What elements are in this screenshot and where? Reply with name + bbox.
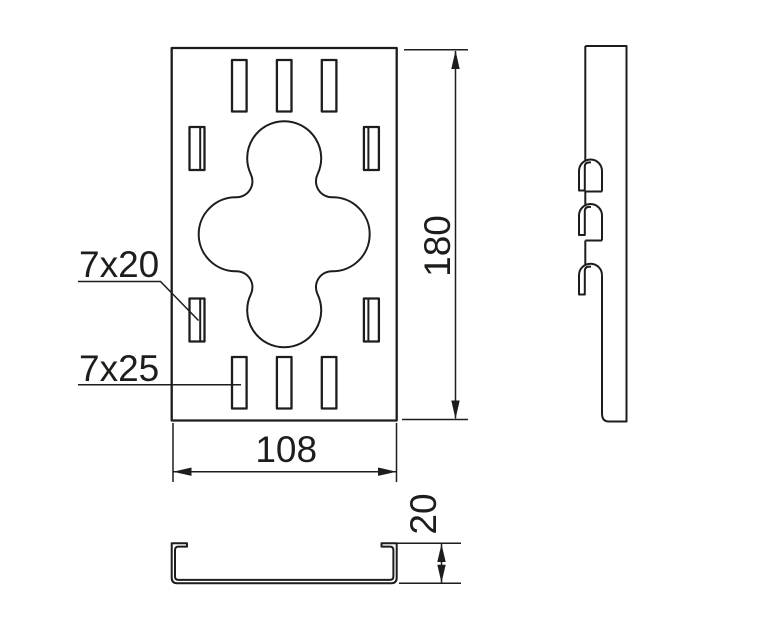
dimension-width: 108 xyxy=(173,423,397,482)
slot-7x25 xyxy=(322,60,337,112)
slot-7x25 xyxy=(277,60,292,112)
dimension-height: 180 xyxy=(402,50,468,420)
slot-7x25 xyxy=(322,357,337,409)
arrowhead-up xyxy=(437,544,445,562)
arrowhead-left xyxy=(173,468,192,476)
drawing-canvas: 180 108 20 7x20 7x25 xyxy=(0,0,762,639)
plate-outline xyxy=(172,48,397,421)
side-view xyxy=(579,46,627,422)
arrowhead-down xyxy=(437,565,445,583)
slot-7x25 xyxy=(232,60,247,112)
side-profile-hooks xyxy=(579,46,602,295)
front-view xyxy=(172,48,397,421)
dimension-height-text: 180 xyxy=(417,215,458,277)
bottom-view xyxy=(172,543,397,583)
slots-7x20 xyxy=(190,127,379,342)
label-slot-large: 7x25 xyxy=(78,348,241,389)
label-slot-small-text: 7x20 xyxy=(79,244,159,285)
arrowhead-down xyxy=(451,401,459,420)
label-slot-large-text: 7x25 xyxy=(79,348,159,389)
slots-7x25-top xyxy=(232,60,336,112)
slot-7x20 xyxy=(364,127,379,170)
slot-7x20 xyxy=(364,299,379,342)
leader-line xyxy=(78,282,199,321)
quatrefoil-cutout xyxy=(199,121,370,347)
arrowhead-right xyxy=(378,468,397,476)
arrowhead-up xyxy=(451,51,459,70)
label-slot-small: 7x20 xyxy=(78,244,199,321)
dimension-depth: 20 xyxy=(383,493,461,583)
slot-7x25 xyxy=(232,357,247,409)
dimension-width-text: 108 xyxy=(255,429,317,470)
technical-drawing: 180 108 20 7x20 7x25 xyxy=(0,0,762,639)
side-profile-outline xyxy=(585,46,626,422)
slots-7x25-bottom xyxy=(232,357,336,409)
dimension-depth-text: 20 xyxy=(403,493,444,534)
slot-7x20 xyxy=(190,127,205,170)
slot-7x25 xyxy=(277,357,292,409)
channel-section xyxy=(172,543,397,583)
